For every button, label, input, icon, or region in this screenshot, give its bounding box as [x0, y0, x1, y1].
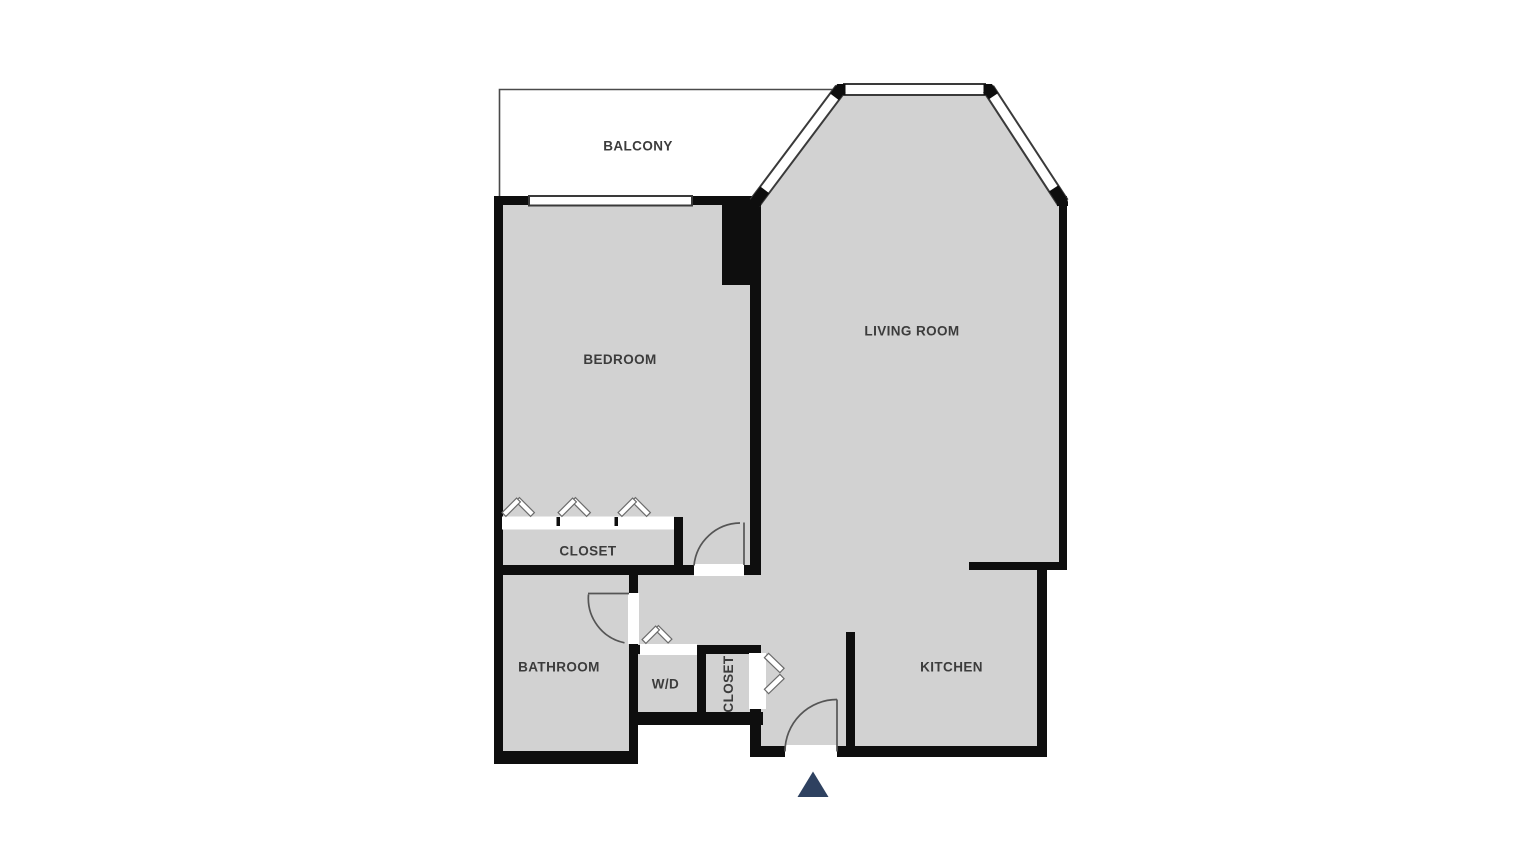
svg-text:BEDROOM: BEDROOM: [583, 352, 656, 367]
svg-text:BALCONY: BALCONY: [603, 139, 673, 154]
svg-text:W/D: W/D: [652, 677, 679, 692]
svg-text:CLOSET: CLOSET: [559, 544, 617, 559]
svg-text:LIVING ROOM: LIVING ROOM: [864, 324, 959, 339]
svg-text:BATHROOM: BATHROOM: [518, 660, 600, 675]
svg-text:CLOSET: CLOSET: [721, 655, 736, 713]
svg-text:KITCHEN: KITCHEN: [920, 660, 983, 675]
